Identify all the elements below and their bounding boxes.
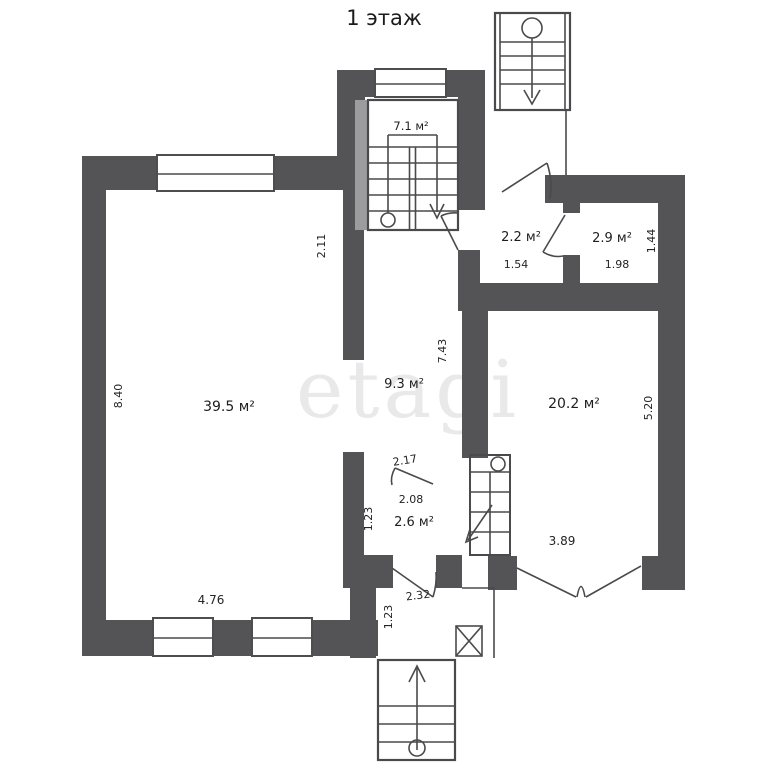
room-label-hall: 2.2 м² (488, 231, 554, 245)
door-arc (543, 252, 563, 257)
door-arc (577, 587, 585, 598)
door-leaf-hall (441, 216, 458, 250)
dim-hall-width: 1.54 (494, 259, 538, 271)
lobby-boundary-line (462, 588, 494, 658)
door-arc (441, 213, 458, 216)
room-label-stairwell: 7.1 м² (378, 120, 444, 133)
dim-main-height: 5.20 (643, 388, 655, 428)
dim-lobby-height: 1.23 (383, 597, 395, 637)
floor-plan: 1 этаж etagi (0, 0, 768, 768)
door-arc (391, 468, 395, 485)
dim-living-width: 4.76 (187, 594, 235, 607)
entrance-stairs-bottom (378, 660, 455, 760)
door-leaf-terrace-right (586, 566, 641, 597)
dim-wc-width: 1.98 (595, 259, 639, 271)
dim-corridor-height: 7.43 (437, 331, 449, 371)
door-leaf-terrace-left (517, 568, 576, 597)
room-label-main: 20.2 м² (529, 397, 619, 412)
dim-closet-height: 1.23 (363, 499, 375, 539)
entrance-stairs-top (495, 13, 570, 175)
stair-start-circle (381, 213, 395, 227)
shaft-symbol (456, 626, 482, 656)
room-label-closet: 2.6 м² (392, 516, 436, 530)
dim-living-top: 2.11 (316, 226, 328, 266)
stair-direction-line (468, 505, 492, 540)
door-leaf-vestibule (502, 163, 547, 192)
page-title: 1 этаж (0, 6, 768, 30)
small-stairs (466, 455, 510, 555)
shaft-cross-icon (456, 626, 482, 656)
door-leaf-closet-top (395, 468, 433, 484)
stair-step-lines (368, 147, 458, 211)
room-label-wc: 2.9 м² (579, 232, 645, 246)
dim-living-height: 8.40 (113, 376, 125, 416)
door-arc (547, 163, 551, 199)
room-label-living: 39.5 м² (184, 400, 274, 415)
dim-wc-depth: 1.44 (646, 221, 658, 261)
dim-main-width: 3.89 (538, 535, 586, 548)
dim-closet-width: 2.08 (389, 494, 433, 506)
room-label-corridor: 9.3 м² (371, 378, 437, 392)
stair-start-circle (491, 457, 505, 471)
stair-divider (410, 147, 416, 230)
